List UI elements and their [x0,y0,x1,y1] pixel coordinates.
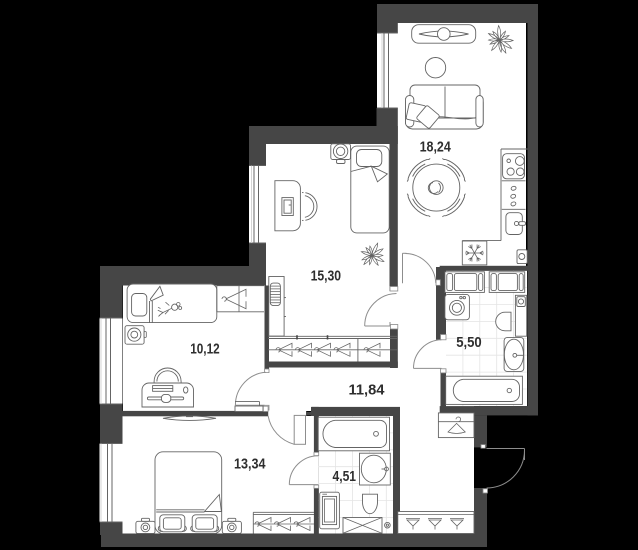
svg-text:11,84: 11,84 [349,383,385,399]
svg-text:10,12: 10,12 [190,342,220,358]
svg-text:4,51: 4,51 [333,469,357,485]
svg-text:15,30: 15,30 [311,269,342,285]
svg-text:18,24: 18,24 [420,139,451,155]
svg-text:13,34: 13,34 [234,457,266,473]
svg-text:5,50: 5,50 [456,335,482,351]
